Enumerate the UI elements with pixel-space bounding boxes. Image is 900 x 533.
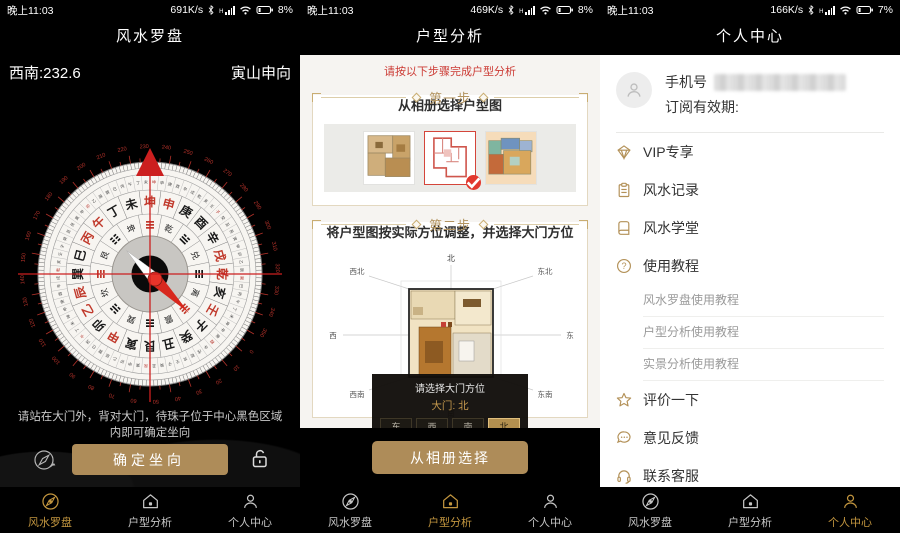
tutorial-list: 风水罗盘使用教程 户型分析使用教程 实景分析使用教程 (616, 285, 884, 381)
dir-north: 北 (447, 254, 455, 263)
compass-tab-icon (640, 491, 661, 512)
svg-text:癸: 癸 (160, 362, 165, 368)
unlock-icon[interactable] (249, 447, 271, 476)
svg-text:240: 240 (161, 144, 171, 151)
bottom-action-area: 从相册选择 (300, 428, 600, 487)
svg-text:巽: 巽 (239, 276, 245, 280)
tutorial-item-compass[interactable]: 风水罗盘使用教程 (643, 285, 884, 317)
svg-text:90: 90 (69, 371, 78, 379)
menu-item-rate[interactable]: 评价一下 (616, 381, 884, 419)
dir-east: 东 (566, 330, 574, 340)
dir-northeast: 东北 (538, 266, 553, 276)
instruction-text: 请站在大门外，背对大门，待珠子位于中心黑色区域 内即可确定坐向 (14, 409, 286, 441)
wifi-icon (539, 5, 552, 15)
status-bar: 晚上11:03 166K/s H 7% (600, 0, 900, 20)
svg-text:70: 70 (108, 391, 116, 399)
svg-text:丑: 丑 (152, 363, 156, 368)
status-bar: 晚上11:03 469K/s H 8% (300, 0, 600, 20)
door-current: 大门: 北 (372, 398, 528, 413)
menu-item-school[interactable]: 风水学堂 (616, 209, 884, 247)
page-title: 户型分析 (300, 20, 600, 55)
steps-tip: 请按以下步骤完成户型分析 (300, 63, 600, 79)
battery-percent: 7% (878, 4, 893, 16)
svg-text:0: 0 (248, 348, 255, 354)
floorplan-thumbnail-2-selected[interactable] (424, 131, 476, 185)
subscription-label: 订阅有效期: (665, 97, 846, 117)
tab-floorplan[interactable]: 户型分析 (100, 487, 200, 533)
svg-text:辰: 辰 (239, 268, 244, 272)
step1-header: 第一步 (312, 88, 588, 107)
record-clipboard-icon (616, 182, 632, 198)
tutorial-question-icon: ? (616, 258, 632, 274)
battery-icon (256, 5, 274, 15)
heading-degree: 西南:232.6 (9, 62, 81, 83)
svg-text:未: 未 (144, 179, 148, 185)
tab-compass[interactable]: 风水罗盘 (0, 487, 100, 533)
door-option-east[interactable]: 东 (380, 418, 412, 428)
tutorial-item-scene[interactable]: 实景分析使用教程 (643, 349, 884, 381)
svg-text:230: 230 (140, 144, 149, 150)
vip-diamond-icon (616, 144, 632, 160)
step2-label: 第二步 (429, 215, 471, 234)
floorplan-thumbnail-3[interactable] (485, 131, 537, 185)
svg-text:320: 320 (274, 264, 280, 273)
calibrate-compass-icon[interactable] (31, 447, 58, 479)
diamond-ornament (412, 93, 422, 103)
battery-icon (556, 5, 574, 15)
tab-compass[interactable]: 风水罗盘 (600, 487, 700, 533)
svg-text:290: 290 (252, 200, 262, 211)
svg-text:20: 20 (214, 377, 222, 385)
compass-tab-icon (340, 491, 361, 512)
svg-text:220: 220 (117, 146, 127, 154)
svg-text:30: 30 (195, 387, 203, 395)
clock: 晚上11:03 (607, 3, 654, 18)
svg-text:40: 40 (174, 394, 181, 401)
screen-floorplan-analysis: 晚上11:03 469K/s H 8% 户型分析 请按以下步骤完成户型分析 第一… (300, 0, 600, 533)
battery-percent: 8% (578, 4, 593, 16)
stitched-screens: 晚上11:03 691K/s H 8% 风水罗盘 西南:232.6 寅山申向 0… (0, 0, 900, 533)
home-tab-icon (440, 491, 461, 512)
menu-item-vip[interactable]: VIP专享 (616, 133, 884, 171)
frame-corner (312, 220, 321, 229)
svg-text:寅: 寅 (136, 362, 141, 368)
svg-text:乙: 乙 (238, 260, 244, 265)
svg-text:50: 50 (153, 398, 159, 404)
svg-text:坤: 坤 (152, 179, 156, 185)
svg-text:260: 260 (203, 156, 214, 166)
menu-item-feedback[interactable]: 意见反馈 (616, 419, 884, 457)
signal-bars-icon: H (519, 6, 535, 15)
network-speed: 469K/s (470, 4, 503, 16)
svg-text:戌: 戌 (55, 276, 61, 280)
dir-southwest: 西南 (350, 389, 365, 399)
svg-text:200: 200 (76, 162, 87, 172)
svg-text:10: 10 (232, 363, 241, 372)
svg-text:140: 140 (20, 275, 26, 284)
menu-item-support[interactable]: 联系客服 (616, 457, 884, 487)
clock: 晚上11:03 (307, 3, 354, 18)
step2-header: 第二步 (312, 215, 588, 234)
thumbnail-band (324, 124, 576, 192)
door-direction-dialog: 请选择大门方位 大门: 北 东 西 南 北 (372, 374, 528, 428)
svg-text:?: ? (621, 261, 626, 271)
tab-floorplan[interactable]: 户型分析 (400, 487, 500, 533)
svg-text:160: 160 (25, 231, 33, 242)
page-title: 风水罗盘 (0, 20, 300, 55)
tab-floorplan[interactable]: 户型分析 (700, 487, 800, 533)
svg-text:190: 190 (59, 175, 70, 186)
choose-from-gallery-button[interactable]: 从相册选择 (372, 441, 528, 474)
signal-bars-icon: H (219, 6, 235, 15)
tab-profile[interactable]: 个人中心 (200, 487, 300, 533)
svg-text:330: 330 (272, 285, 279, 295)
person-tab-icon (540, 491, 561, 512)
svg-text:180: 180 (44, 191, 54, 202)
svg-text:艮: 艮 (144, 363, 148, 368)
svg-text:120: 120 (28, 317, 37, 328)
person-tab-icon (840, 491, 861, 512)
svg-text:申: 申 (160, 179, 165, 185)
svg-text:丁: 丁 (136, 180, 141, 185)
selected-check-icon (466, 175, 481, 190)
diamond-ornament (412, 220, 422, 230)
battery-icon (856, 5, 874, 15)
svg-text:150: 150 (20, 253, 27, 263)
svg-text:210: 210 (96, 152, 107, 161)
dir-northwest: 西北 (350, 267, 365, 276)
compass-tab-icon (40, 491, 61, 512)
tab-bar: 风水罗盘 户型分析 个人中心 (300, 487, 600, 533)
wifi-icon (839, 5, 852, 15)
tutorial-item-floorplan[interactable]: 户型分析使用教程 (643, 317, 884, 349)
blurred-phone-number (714, 74, 846, 91)
frame-corner (579, 220, 588, 229)
phone-label: 手机号 (665, 72, 707, 92)
diamond-ornament (479, 93, 489, 103)
clock: 晚上11:03 (7, 3, 54, 18)
svg-text:乾: 乾 (55, 268, 61, 272)
screen-compass: 晚上11:03 691K/s H 8% 风水罗盘 西南:232.6 寅山申向 0… (0, 0, 300, 533)
door-option-north-selected[interactable]: 北 (488, 418, 520, 428)
bluetooth-icon (507, 4, 515, 16)
network-speed: 691K/s (170, 4, 203, 16)
svg-text:130: 130 (22, 297, 30, 307)
frame-corner (579, 93, 588, 102)
tab-compass[interactable]: 风水罗盘 (300, 487, 400, 533)
profile-content: 手机号 订阅有效期: VIP专享 风水记录 风水学堂 ? (600, 55, 900, 487)
menu-item-tutorials[interactable]: ? 使用教程 (616, 247, 884, 285)
svg-text:100: 100 (51, 355, 62, 366)
step1-label: 第一步 (429, 88, 471, 107)
svg-text:350: 350 (258, 327, 268, 338)
floorplan-steps: 请按以下步骤完成户型分析 第一步 从相册选择户型图 (300, 55, 600, 428)
tab-profile[interactable]: 个人中心 (800, 487, 900, 533)
school-book-icon (616, 220, 632, 236)
network-speed: 166K/s (770, 4, 803, 16)
svg-text:60: 60 (130, 397, 137, 404)
bluetooth-icon (807, 4, 815, 16)
screen-profile: 晚上11:03 166K/s H 7% 个人中心 手机号 (600, 0, 900, 533)
door-options: 东 西 南 北 (372, 418, 528, 428)
svg-text:340: 340 (267, 307, 275, 318)
sitting-facing: 寅山申向 (231, 62, 291, 83)
svg-text:辛: 辛 (55, 284, 61, 289)
svg-text:亥: 亥 (55, 260, 61, 265)
luopan-compass[interactable]: 0102030405060708090100110120130140150160… (0, 140, 300, 410)
avatar (616, 72, 652, 108)
svg-text:170: 170 (32, 210, 42, 221)
diamond-ornament (479, 220, 489, 230)
svg-text:110: 110 (38, 337, 48, 348)
person-tab-icon (240, 491, 261, 512)
menu-item-records[interactable]: 风水记录 (616, 171, 884, 209)
wifi-icon (239, 5, 252, 15)
dir-southeast: 东南 (538, 389, 553, 399)
svg-text:250: 250 (183, 149, 194, 157)
signal-bars-icon: H (819, 6, 835, 15)
svg-text:280: 280 (238, 183, 249, 194)
frame-corner (312, 93, 321, 102)
tab-profile[interactable]: 个人中心 (500, 487, 600, 533)
dialog-title: 请选择大门方位 (372, 380, 528, 395)
support-headset-icon (616, 468, 632, 484)
svg-text:巳: 巳 (238, 284, 243, 289)
feedback-chat-icon (616, 430, 632, 446)
bluetooth-icon (207, 4, 215, 16)
tab-bar: 风水罗盘 户型分析 个人中心 (0, 487, 300, 533)
home-tab-icon (740, 491, 761, 512)
door-option-south[interactable]: 南 (452, 418, 484, 428)
door-option-west[interactable]: 西 (416, 418, 448, 428)
confirm-direction-button[interactable]: 确定坐向 (72, 444, 228, 475)
page-title: 个人中心 (600, 20, 900, 55)
star-icon (616, 392, 632, 408)
svg-text:80: 80 (87, 383, 95, 391)
user-row[interactable]: 手机号 订阅有效期: (616, 72, 884, 117)
home-tab-icon (140, 491, 161, 512)
battery-percent: 8% (278, 4, 293, 16)
svg-text:270: 270 (222, 168, 233, 178)
tab-bar: 风水罗盘 户型分析 个人中心 (600, 487, 900, 533)
status-bar: 晚上11:03 691K/s H 8% (0, 0, 300, 20)
svg-text:300: 300 (263, 220, 272, 231)
dir-west: 西 (329, 331, 337, 340)
step1-section: 第一步 从相册选择户型图 (312, 95, 588, 206)
svg-text:310: 310 (270, 241, 278, 251)
floorplan-thumbnail-1[interactable] (363, 131, 415, 185)
